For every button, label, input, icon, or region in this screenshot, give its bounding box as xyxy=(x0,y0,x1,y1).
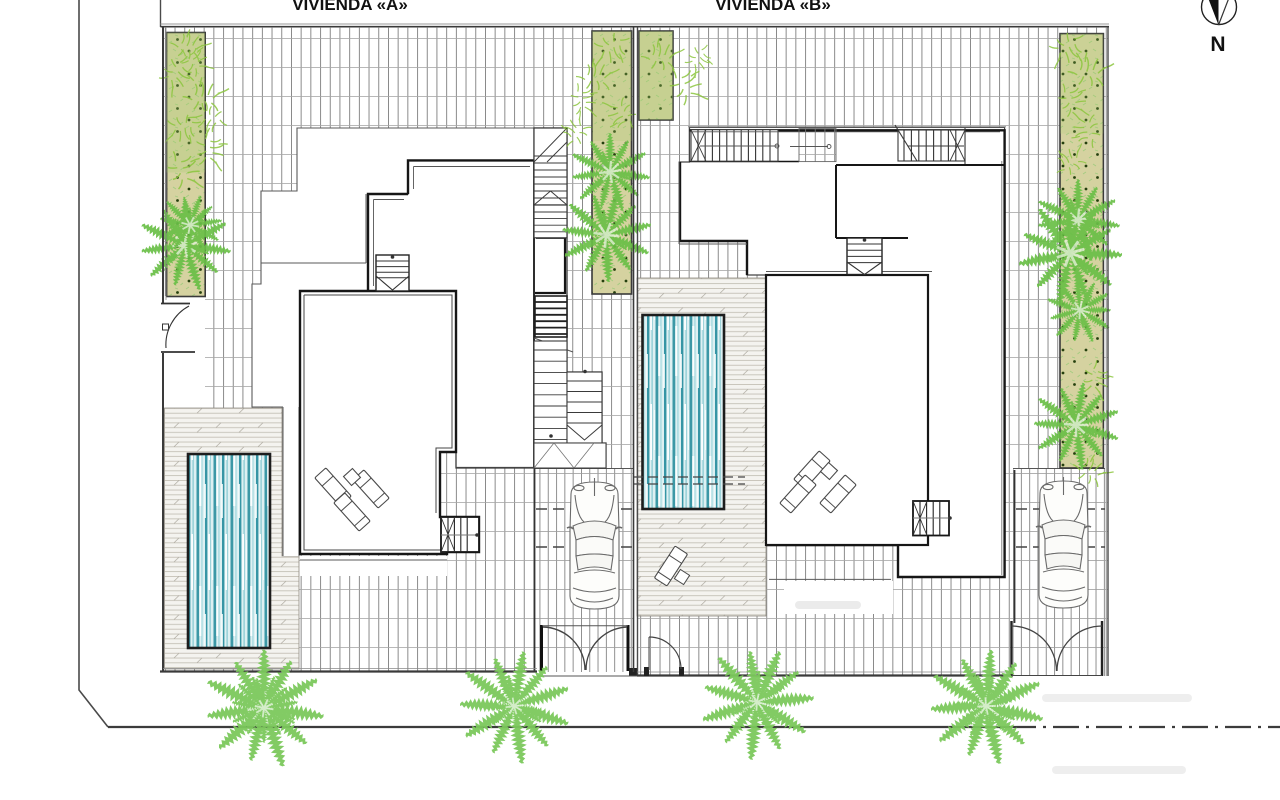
svg-text:VIVIENDA «A»: VIVIENDA «A» xyxy=(292,0,408,14)
svg-text:VIVIENDA «B»: VIVIENDA «B» xyxy=(715,0,831,14)
svg-text:N: N xyxy=(1210,33,1225,56)
